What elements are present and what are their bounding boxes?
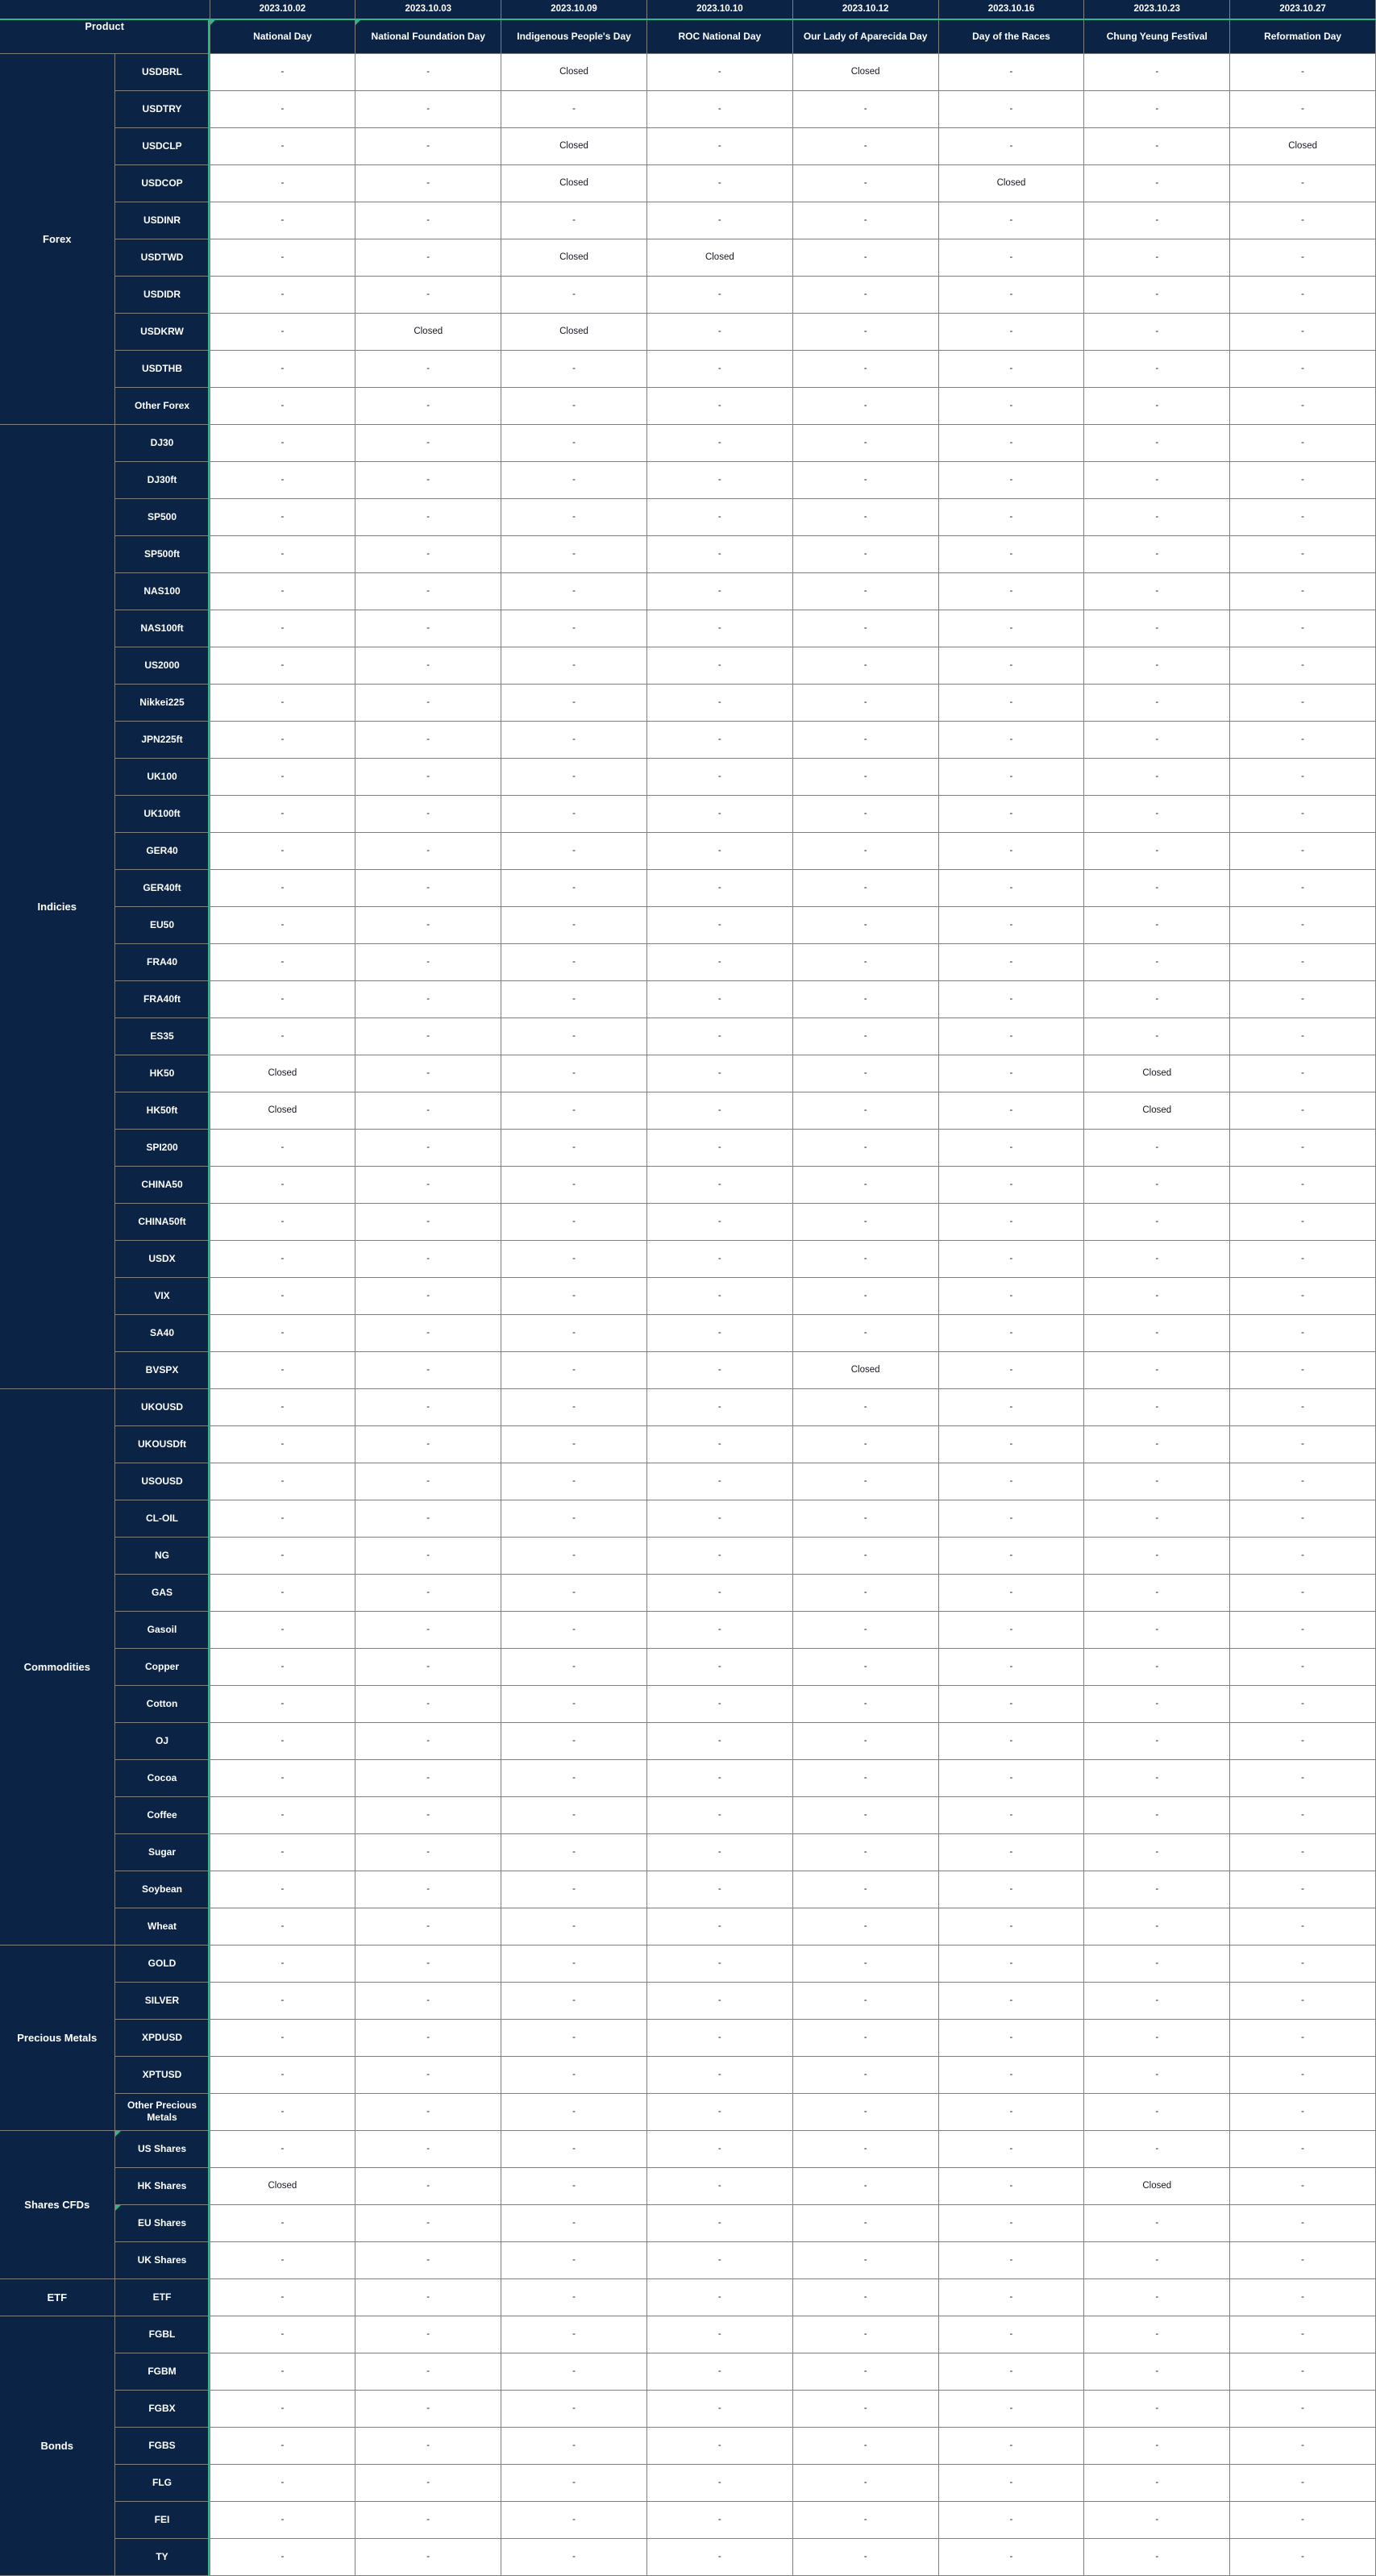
status-open-cell: - bbox=[646, 2390, 792, 2427]
status-open-cell: - bbox=[792, 943, 938, 980]
table-row: GER40ft-------- bbox=[0, 869, 1376, 906]
status-open-cell: - bbox=[210, 1463, 355, 1500]
status-open-cell: - bbox=[501, 387, 647, 424]
status-closed-cell: Closed bbox=[355, 313, 501, 350]
product-cell: USDTHB bbox=[114, 350, 210, 387]
status-open-cell: - bbox=[1084, 1722, 1230, 1759]
status-open-cell: - bbox=[792, 164, 938, 202]
status-open-cell: - bbox=[792, 1945, 938, 1982]
product-cell: BVSPX bbox=[114, 1351, 210, 1388]
status-open-cell: - bbox=[938, 461, 1084, 498]
status-open-cell: - bbox=[938, 2316, 1084, 2353]
status-open-cell: - bbox=[646, 164, 792, 202]
table-row: ES35-------- bbox=[0, 1017, 1376, 1055]
date-header: 2023.10.02 bbox=[210, 0, 355, 19]
status-open-cell: - bbox=[646, 1685, 792, 1722]
status-open-cell: - bbox=[1084, 2390, 1230, 2427]
product-cell: CHINA50 bbox=[114, 1166, 210, 1203]
status-open-cell: - bbox=[938, 1092, 1084, 1129]
table-row: Sugar-------- bbox=[0, 1833, 1376, 1871]
status-open-cell: - bbox=[938, 2130, 1084, 2167]
status-open-cell: - bbox=[501, 90, 647, 127]
status-open-cell: - bbox=[501, 832, 647, 869]
product-cell: Gasoil bbox=[114, 1611, 210, 1648]
table-row: NAS100-------- bbox=[0, 572, 1376, 610]
status-open-cell: - bbox=[938, 90, 1084, 127]
status-open-cell: - bbox=[1084, 2427, 1230, 2464]
status-open-cell: - bbox=[938, 1129, 1084, 1166]
status-open-cell: - bbox=[938, 1240, 1084, 1277]
status-open-cell: - bbox=[355, 1982, 501, 2019]
status-open-cell: - bbox=[501, 2093, 647, 2130]
product-cell: HK Shares bbox=[114, 2167, 210, 2204]
product-cell: JPN225ft bbox=[114, 721, 210, 758]
status-open-cell: - bbox=[210, 2538, 355, 2575]
status-open-cell: - bbox=[501, 980, 647, 1017]
product-cell: GER40 bbox=[114, 832, 210, 869]
status-open-cell: - bbox=[938, 127, 1084, 164]
status-open-cell: - bbox=[355, 535, 501, 572]
status-open-cell: - bbox=[646, 980, 792, 1017]
status-open-cell: - bbox=[210, 980, 355, 1017]
status-open-cell: - bbox=[355, 1092, 501, 1129]
status-open-cell: - bbox=[210, 2241, 355, 2278]
status-open-cell: - bbox=[1084, 1388, 1230, 1425]
table-row: XPTUSD-------- bbox=[0, 2056, 1376, 2093]
status-open-cell: - bbox=[210, 721, 355, 758]
product-cell: FGBM bbox=[114, 2353, 210, 2390]
status-open-cell: - bbox=[1230, 2130, 1376, 2167]
status-open-cell: - bbox=[1230, 1685, 1376, 1722]
status-open-cell: - bbox=[646, 1425, 792, 1463]
status-open-cell: - bbox=[1084, 1017, 1230, 1055]
status-open-cell: - bbox=[792, 127, 938, 164]
status-open-cell: - bbox=[792, 1129, 938, 1166]
status-open-cell: - bbox=[1230, 276, 1376, 313]
status-open-cell: - bbox=[646, 2316, 792, 2353]
status-open-cell: - bbox=[1230, 684, 1376, 721]
status-open-cell: - bbox=[501, 1463, 647, 1500]
status-open-cell: - bbox=[1084, 832, 1230, 869]
status-open-cell: - bbox=[792, 906, 938, 943]
status-open-cell: - bbox=[1084, 164, 1230, 202]
status-closed-cell: Closed bbox=[1230, 127, 1376, 164]
product-cell: SILVER bbox=[114, 1982, 210, 2019]
status-open-cell: - bbox=[792, 1092, 938, 1129]
status-open-cell: - bbox=[1230, 572, 1376, 610]
status-open-cell: - bbox=[355, 1945, 501, 1982]
status-open-cell: - bbox=[210, 2464, 355, 2501]
status-open-cell: - bbox=[355, 387, 501, 424]
status-open-cell: - bbox=[1230, 906, 1376, 943]
status-open-cell: - bbox=[1084, 1982, 1230, 2019]
status-open-cell: - bbox=[938, 1982, 1084, 2019]
table-row: BVSPX----Closed--- bbox=[0, 1351, 1376, 1388]
product-cell: SP500ft bbox=[114, 535, 210, 572]
status-open-cell: - bbox=[646, 1945, 792, 1982]
status-open-cell: - bbox=[501, 2019, 647, 2056]
status-open-cell: - bbox=[938, 980, 1084, 1017]
status-open-cell: - bbox=[792, 2427, 938, 2464]
status-open-cell: - bbox=[1230, 1500, 1376, 1537]
status-open-cell: - bbox=[938, 906, 1084, 943]
status-open-cell: - bbox=[355, 2501, 501, 2538]
status-open-cell: - bbox=[355, 424, 501, 461]
status-open-cell: - bbox=[501, 1833, 647, 1871]
status-open-cell: - bbox=[210, 90, 355, 127]
table-row: FRA40-------- bbox=[0, 943, 1376, 980]
status-open-cell: - bbox=[646, 1277, 792, 1314]
product-cell: USDKRW bbox=[114, 313, 210, 350]
product-cell: CHINA50ft bbox=[114, 1203, 210, 1240]
product-cell: USDINR bbox=[114, 202, 210, 239]
status-open-cell: - bbox=[938, 202, 1084, 239]
table-row: SP500-------- bbox=[0, 498, 1376, 535]
status-open-cell: - bbox=[355, 1129, 501, 1166]
table-row: NG-------- bbox=[0, 1537, 1376, 1574]
status-open-cell: - bbox=[210, 1908, 355, 1945]
status-open-cell: - bbox=[355, 2130, 501, 2167]
section-label: Commodities bbox=[0, 1388, 114, 1945]
status-open-cell: - bbox=[1084, 2353, 1230, 2390]
status-open-cell: - bbox=[501, 610, 647, 647]
status-open-cell: - bbox=[646, 1314, 792, 1351]
status-closed-cell: Closed bbox=[792, 53, 938, 90]
status-open-cell: - bbox=[646, 943, 792, 980]
status-open-cell: - bbox=[1084, 276, 1230, 313]
status-open-cell: - bbox=[355, 1796, 501, 1833]
holiday-schedule-screen: Product 2023.10.022023.10.032023.10.0920… bbox=[0, 0, 1376, 2576]
section-label: ETF bbox=[0, 2278, 114, 2316]
status-open-cell: - bbox=[792, 90, 938, 127]
status-open-cell: - bbox=[501, 1129, 647, 1166]
status-open-cell: - bbox=[210, 53, 355, 90]
status-open-cell: - bbox=[792, 1017, 938, 1055]
product-cell: UK Shares bbox=[114, 2241, 210, 2278]
status-open-cell: - bbox=[792, 832, 938, 869]
status-open-cell: - bbox=[792, 535, 938, 572]
status-open-cell: - bbox=[210, 2019, 355, 2056]
status-open-cell: - bbox=[792, 1314, 938, 1351]
status-open-cell: - bbox=[938, 2427, 1084, 2464]
status-open-cell: - bbox=[1230, 2241, 1376, 2278]
status-open-cell: - bbox=[1084, 1500, 1230, 1537]
table-row: FRA40ft-------- bbox=[0, 980, 1376, 1017]
status-open-cell: - bbox=[646, 758, 792, 795]
status-open-cell: - bbox=[1230, 535, 1376, 572]
status-open-cell: - bbox=[355, 906, 501, 943]
product-cell: HK50 bbox=[114, 1055, 210, 1092]
table-row: XPDUSD-------- bbox=[0, 2019, 1376, 2056]
status-open-cell: - bbox=[1230, 1055, 1376, 1092]
status-open-cell: - bbox=[355, 610, 501, 647]
status-open-cell: - bbox=[501, 1388, 647, 1425]
status-open-cell: - bbox=[355, 1240, 501, 1277]
status-open-cell: - bbox=[1084, 721, 1230, 758]
status-open-cell: - bbox=[501, 1166, 647, 1203]
status-open-cell: - bbox=[501, 1945, 647, 1982]
status-open-cell: - bbox=[938, 2056, 1084, 2093]
status-open-cell: - bbox=[792, 424, 938, 461]
status-open-cell: - bbox=[646, 2167, 792, 2204]
status-open-cell: - bbox=[1084, 869, 1230, 906]
status-closed-cell: Closed bbox=[792, 1351, 938, 1388]
product-cell: FGBS bbox=[114, 2427, 210, 2464]
status-open-cell: - bbox=[501, 2056, 647, 2093]
status-open-cell: - bbox=[938, 1722, 1084, 1759]
status-open-cell: - bbox=[938, 1945, 1084, 1982]
status-open-cell: - bbox=[792, 2353, 938, 2390]
status-open-cell: - bbox=[210, 1203, 355, 1240]
status-open-cell: - bbox=[792, 1833, 938, 1871]
status-open-cell: - bbox=[210, 1759, 355, 1796]
status-open-cell: - bbox=[210, 2390, 355, 2427]
section-label: Shares CFDs bbox=[0, 2130, 114, 2278]
status-open-cell: - bbox=[501, 2278, 647, 2316]
product-cell: DJ30ft bbox=[114, 461, 210, 498]
status-open-cell: - bbox=[355, 1574, 501, 1611]
status-open-cell: - bbox=[938, 424, 1084, 461]
status-open-cell: - bbox=[210, 461, 355, 498]
status-open-cell: - bbox=[210, 127, 355, 164]
status-open-cell: - bbox=[1084, 2501, 1230, 2538]
table-row: UK100-------- bbox=[0, 758, 1376, 795]
status-open-cell: - bbox=[501, 350, 647, 387]
table-row: CHINA50ft-------- bbox=[0, 1203, 1376, 1240]
section-label: Forex bbox=[0, 53, 114, 424]
product-cell: XPDUSD bbox=[114, 2019, 210, 2056]
table-row: USDTHB-------- bbox=[0, 350, 1376, 387]
product-header-cell: Product bbox=[0, 0, 210, 53]
product-cell: Soybean bbox=[114, 1871, 210, 1908]
status-open-cell: - bbox=[1084, 1908, 1230, 1945]
status-open-cell: - bbox=[938, 1166, 1084, 1203]
status-open-cell: - bbox=[355, 1277, 501, 1314]
status-open-cell: - bbox=[210, 1500, 355, 1537]
status-open-cell: - bbox=[501, 1871, 647, 1908]
product-cell: TY bbox=[114, 2538, 210, 2575]
status-open-cell: - bbox=[792, 1166, 938, 1203]
status-open-cell: - bbox=[501, 2204, 647, 2241]
date-header: 2023.10.23 bbox=[1084, 0, 1230, 19]
status-open-cell: - bbox=[792, 498, 938, 535]
status-open-cell: - bbox=[501, 2167, 647, 2204]
table-row: Cocoa-------- bbox=[0, 1759, 1376, 1796]
status-open-cell: - bbox=[210, 1574, 355, 1611]
status-open-cell: - bbox=[1084, 2056, 1230, 2093]
status-open-cell: - bbox=[938, 53, 1084, 90]
status-open-cell: - bbox=[1084, 2278, 1230, 2316]
status-open-cell: - bbox=[501, 1685, 647, 1722]
status-open-cell: - bbox=[210, 572, 355, 610]
status-open-cell: - bbox=[792, 684, 938, 721]
product-cell: FEI bbox=[114, 2501, 210, 2538]
status-open-cell: - bbox=[1084, 1351, 1230, 1388]
status-open-cell: - bbox=[210, 1685, 355, 1722]
product-cell: USDTRY bbox=[114, 90, 210, 127]
section-label: Indicies bbox=[0, 424, 114, 1388]
status-open-cell: - bbox=[355, 572, 501, 610]
status-open-cell: - bbox=[1230, 202, 1376, 239]
table-row: USDINR-------- bbox=[0, 202, 1376, 239]
header-row-dates: Product 2023.10.022023.10.032023.10.0920… bbox=[0, 0, 1376, 19]
table-row: TY-------- bbox=[0, 2538, 1376, 2575]
status-open-cell: - bbox=[646, 572, 792, 610]
status-open-cell: - bbox=[1230, 164, 1376, 202]
status-open-cell: - bbox=[355, 2353, 501, 2390]
status-open-cell: - bbox=[938, 276, 1084, 313]
status-open-cell: - bbox=[1230, 1463, 1376, 1500]
status-open-cell: - bbox=[210, 647, 355, 684]
status-open-cell: - bbox=[210, 2130, 355, 2167]
status-open-cell: - bbox=[1230, 90, 1376, 127]
status-open-cell: - bbox=[210, 202, 355, 239]
status-open-cell: - bbox=[355, 202, 501, 239]
status-open-cell: - bbox=[792, 1277, 938, 1314]
status-open-cell: - bbox=[355, 239, 501, 276]
status-open-cell: - bbox=[938, 2538, 1084, 2575]
status-open-cell: - bbox=[1230, 1833, 1376, 1871]
status-open-cell: - bbox=[1230, 1166, 1376, 1203]
status-open-cell: - bbox=[792, 795, 938, 832]
status-open-cell: - bbox=[938, 239, 1084, 276]
status-open-cell: - bbox=[646, 2019, 792, 2056]
status-open-cell: - bbox=[792, 758, 938, 795]
status-open-cell: - bbox=[501, 2390, 647, 2427]
status-open-cell: - bbox=[938, 1833, 1084, 1871]
status-open-cell: - bbox=[792, 2538, 938, 2575]
table-row: CommoditiesUKOUSD-------- bbox=[0, 1388, 1376, 1425]
table-row: FLG-------- bbox=[0, 2464, 1376, 2501]
product-cell: Copper bbox=[114, 1648, 210, 1685]
status-open-cell: - bbox=[501, 424, 647, 461]
date-header: 2023.10.10 bbox=[646, 0, 792, 19]
status-open-cell: - bbox=[1084, 1314, 1230, 1351]
status-open-cell: - bbox=[646, 2427, 792, 2464]
status-open-cell: - bbox=[1084, 684, 1230, 721]
status-open-cell: - bbox=[1084, 53, 1230, 90]
status-open-cell: - bbox=[646, 1388, 792, 1425]
status-open-cell: - bbox=[1084, 1648, 1230, 1685]
status-open-cell: - bbox=[355, 832, 501, 869]
status-open-cell: - bbox=[501, 1611, 647, 1648]
status-open-cell: - bbox=[938, 2204, 1084, 2241]
status-open-cell: - bbox=[646, 127, 792, 164]
status-open-cell: - bbox=[1230, 1574, 1376, 1611]
status-open-cell: - bbox=[1230, 2316, 1376, 2353]
status-open-cell: - bbox=[501, 2316, 647, 2353]
table-row: JPN225ft-------- bbox=[0, 721, 1376, 758]
status-open-cell: - bbox=[646, 424, 792, 461]
status-open-cell: - bbox=[1230, 610, 1376, 647]
status-open-cell: - bbox=[501, 721, 647, 758]
status-open-cell: - bbox=[1084, 202, 1230, 239]
status-open-cell: - bbox=[1230, 980, 1376, 1017]
product-cell: USOUSD bbox=[114, 1463, 210, 1500]
holiday-header: Day of the Races bbox=[938, 19, 1084, 53]
product-cell: SP500 bbox=[114, 498, 210, 535]
holiday-header: Chung Yeung Festival bbox=[1084, 19, 1230, 53]
product-cell: SA40 bbox=[114, 1314, 210, 1351]
status-open-cell: - bbox=[646, 869, 792, 906]
table-row: Soybean-------- bbox=[0, 1871, 1376, 1908]
status-open-cell: - bbox=[646, 2501, 792, 2538]
product-cell: GOLD bbox=[114, 1945, 210, 1982]
status-open-cell: - bbox=[355, 869, 501, 906]
table-row: USDX-------- bbox=[0, 1240, 1376, 1277]
status-open-cell: - bbox=[210, 610, 355, 647]
status-open-cell: - bbox=[1084, 943, 1230, 980]
status-open-cell: - bbox=[355, 2278, 501, 2316]
status-open-cell: - bbox=[355, 1537, 501, 1574]
status-open-cell: - bbox=[210, 387, 355, 424]
status-open-cell: - bbox=[355, 1425, 501, 1463]
status-open-cell: - bbox=[1230, 1277, 1376, 1314]
status-open-cell: - bbox=[646, 2464, 792, 2501]
status-open-cell: - bbox=[646, 2278, 792, 2316]
product-cell: Other Forex bbox=[114, 387, 210, 424]
status-open-cell: - bbox=[210, 1796, 355, 1833]
product-cell: US Shares bbox=[114, 2130, 210, 2167]
table-row: Nikkei225-------- bbox=[0, 684, 1376, 721]
status-open-cell: - bbox=[938, 2501, 1084, 2538]
table-row: HK50Closed-----Closed- bbox=[0, 1055, 1376, 1092]
table-row: NAS100ft-------- bbox=[0, 610, 1376, 647]
status-open-cell: - bbox=[1230, 2019, 1376, 2056]
status-open-cell: - bbox=[646, 2538, 792, 2575]
section-label: Precious Metals bbox=[0, 1945, 114, 2130]
status-open-cell: - bbox=[1084, 1129, 1230, 1166]
status-open-cell: - bbox=[210, 1722, 355, 1759]
holiday-header: Our Lady of Aparecida Day bbox=[792, 19, 938, 53]
status-open-cell: - bbox=[646, 1574, 792, 1611]
status-open-cell: - bbox=[792, 2464, 938, 2501]
status-open-cell: - bbox=[355, 461, 501, 498]
status-open-cell: - bbox=[1084, 1240, 1230, 1277]
status-open-cell: - bbox=[646, 2130, 792, 2167]
status-open-cell: - bbox=[1084, 2538, 1230, 2575]
status-open-cell: - bbox=[1230, 1203, 1376, 1240]
date-header: 2023.10.09 bbox=[501, 0, 647, 19]
status-open-cell: - bbox=[1230, 1388, 1376, 1425]
status-open-cell: - bbox=[938, 1500, 1084, 1537]
status-closed-cell: Closed bbox=[210, 2167, 355, 2204]
status-open-cell: - bbox=[210, 313, 355, 350]
status-open-cell: - bbox=[210, 1611, 355, 1648]
status-open-cell: - bbox=[646, 1871, 792, 1908]
status-open-cell: - bbox=[501, 647, 647, 684]
status-open-cell: - bbox=[355, 1055, 501, 1092]
status-open-cell: - bbox=[1084, 1871, 1230, 1908]
status-open-cell: - bbox=[501, 2427, 647, 2464]
status-open-cell: - bbox=[210, 2501, 355, 2538]
status-open-cell: - bbox=[501, 2501, 647, 2538]
status-open-cell: - bbox=[501, 2538, 647, 2575]
status-open-cell: - bbox=[1084, 1463, 1230, 1500]
status-closed-cell: Closed bbox=[210, 1092, 355, 1129]
status-open-cell: - bbox=[646, 610, 792, 647]
status-open-cell: - bbox=[1084, 498, 1230, 535]
status-open-cell: - bbox=[646, 535, 792, 572]
status-open-cell: - bbox=[355, 2316, 501, 2353]
status-open-cell: - bbox=[210, 1017, 355, 1055]
table-row: EU50-------- bbox=[0, 906, 1376, 943]
status-open-cell: - bbox=[210, 350, 355, 387]
status-open-cell: - bbox=[646, 684, 792, 721]
status-open-cell: - bbox=[210, 164, 355, 202]
status-open-cell: - bbox=[355, 721, 501, 758]
status-open-cell: - bbox=[355, 2093, 501, 2130]
